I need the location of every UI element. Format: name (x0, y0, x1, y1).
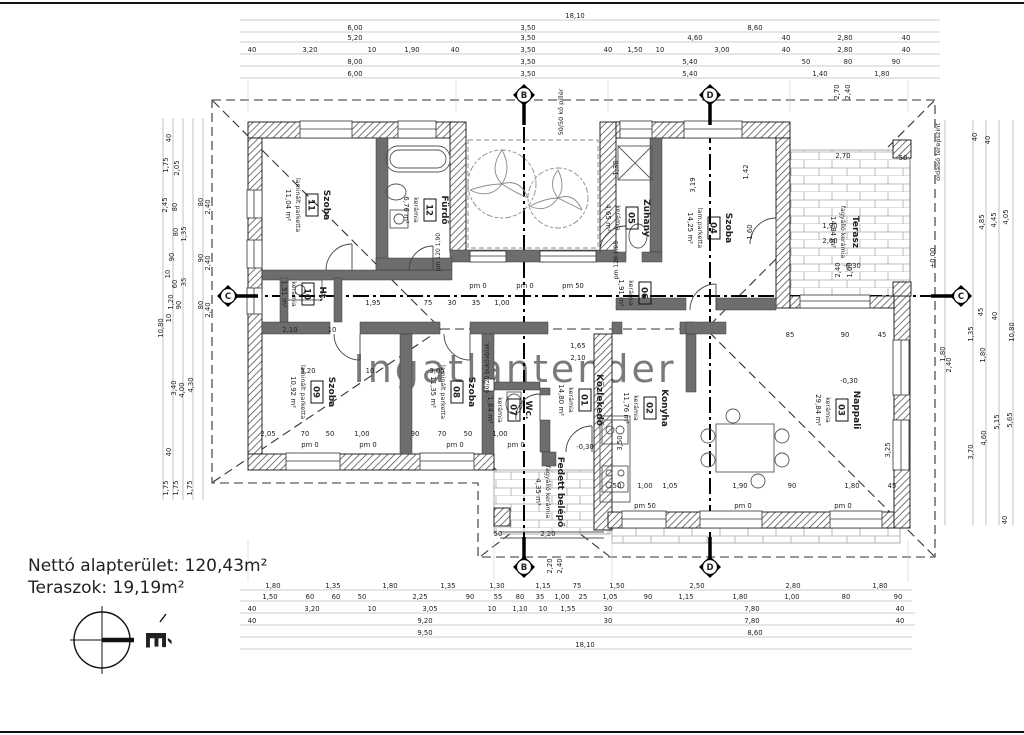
dim-label: 3,40 (170, 380, 178, 395)
window (398, 121, 436, 138)
dim-label: 18,10 (565, 12, 584, 20)
dim-label: 2,25 (412, 593, 427, 601)
dim-label: 90 (841, 331, 850, 339)
dim-label: 1,75 (172, 480, 180, 495)
dim-label: 40 (782, 46, 791, 54)
floorplan-drawing: Ingatlantender (0, 0, 1024, 735)
dim-label: 40 (782, 34, 791, 42)
dim-label: 40 (902, 46, 911, 54)
dim-label: 2,40 (204, 199, 212, 214)
dim-label: 75 (573, 582, 582, 590)
annotation: pm 0 (834, 502, 851, 510)
annotation: pm 50 (634, 502, 656, 510)
dim-label: 5,40 (682, 70, 697, 78)
room-material: laminált parketta (294, 178, 302, 232)
dim-label: 2,05 (260, 430, 275, 438)
dim-label: 1,00 (494, 299, 509, 307)
annotation: pm 0 (301, 441, 318, 449)
dim-label: 25 (579, 593, 588, 601)
room-material: kerámia (290, 281, 298, 307)
dim-label: 4,45 (990, 212, 998, 227)
window (286, 453, 340, 470)
room-area: 14,25 m² (686, 212, 694, 244)
dim-label: 1,00 (637, 482, 652, 490)
room-area: 4,65 m² (604, 204, 612, 232)
dim-label: 5,65 (1006, 412, 1014, 427)
dim-label: 1,75 (162, 480, 170, 495)
window (893, 420, 909, 470)
terrace-door (800, 295, 870, 308)
window (247, 240, 262, 268)
dim-label: 1,80 (979, 347, 987, 362)
room-material: laminált parketta (299, 365, 307, 419)
dim-label: 2,20 (540, 530, 555, 538)
annotation: pm 0 (446, 441, 463, 449)
dim-label: 10 (165, 314, 173, 323)
porch-door (470, 251, 506, 262)
dim-label: 80 (516, 593, 525, 601)
dim-label: 10 (539, 605, 548, 613)
dim-label: 2,40 (945, 357, 953, 372)
dim-label: 50 (899, 154, 908, 162)
annotation: 50/50 kő pillér (556, 88, 565, 135)
dim-label: 45 (878, 331, 887, 339)
room-material: kerámia (824, 397, 832, 423)
room-name: Szoba (466, 377, 476, 407)
dim-label: 3,70 (967, 444, 975, 459)
dim-label: 2,40 (834, 262, 842, 277)
dim-label: 90 (175, 301, 183, 310)
dim-label: 3,50 (520, 24, 535, 32)
room-area: 6,76 m² (402, 196, 410, 224)
annotation: oldalsó terepszint (934, 123, 942, 181)
dim-label: 10 (328, 326, 337, 334)
dim-label: 40 (1001, 516, 1009, 525)
room-name: Fürdő (439, 195, 449, 224)
annotation: pm 120 1,90 (435, 233, 442, 271)
dim-label: 40 (165, 448, 173, 457)
dim-label: 8,00 (347, 58, 362, 66)
room-material: kerámia (632, 395, 640, 421)
dim-label: 2,70 (833, 84, 841, 99)
dim-label: 3,50 (520, 34, 535, 42)
room-number: 02 (644, 402, 654, 414)
dim-label: 1,35 (325, 582, 340, 590)
dim-label: 1,05 (662, 482, 677, 490)
room-area: 4,35 m² (534, 478, 542, 506)
dim-label: 40 (165, 134, 173, 143)
dim-label: 30 (448, 299, 457, 307)
window (893, 340, 909, 395)
section-letter: C (958, 292, 964, 302)
dim-label: 80 (171, 203, 179, 212)
dim-label: 3,50 (520, 46, 535, 54)
dim-label: 1,30 (489, 582, 504, 590)
dim-label: 40 (248, 46, 257, 54)
dim-label: 10 (368, 46, 377, 54)
dim-label: 2,40 (204, 255, 212, 270)
dim-label: 5,20 (347, 34, 362, 42)
annotation: pm 0 (734, 502, 751, 510)
dim-label: 75 (424, 299, 433, 307)
dim-label: 35 (180, 278, 188, 287)
room-area: 10,92 m² (289, 376, 297, 408)
dim-label: 40 (991, 312, 999, 321)
annotation: pm 120 1,05 (613, 241, 620, 279)
annotation: -0,30 (843, 262, 861, 270)
room-number: 06 (639, 287, 649, 299)
window (420, 453, 474, 470)
dim-label: 85 (786, 331, 795, 339)
dim-label: 1,10 (512, 605, 527, 613)
room-name: Nappali (851, 391, 861, 430)
dim-label: 80 (844, 58, 853, 66)
window (622, 511, 666, 528)
dim-label: 50 (358, 593, 367, 601)
dim-label: 1,40 (812, 70, 827, 78)
dim-label: 1,50 (609, 582, 624, 590)
dim-label: 2,80 (837, 34, 852, 42)
dim-label: 8,60 (747, 629, 762, 637)
dim-label: 90 (411, 430, 420, 438)
dim-label: 70 (301, 430, 310, 438)
room-name: Közlekedő (594, 374, 604, 426)
section-letter: C (225, 292, 231, 302)
dim-label: 1,05 (602, 593, 617, 601)
dim-label: 5,40 (682, 58, 697, 66)
dim-label: 2,80 (837, 46, 852, 54)
annotation: pm 0 (507, 441, 524, 449)
dim-label: 4,00 (178, 382, 186, 397)
net-area-text: Nettó alapterület: 120,43m² (28, 556, 267, 576)
dim-label: 60 (332, 593, 341, 601)
dim-label: 90 (168, 253, 176, 262)
dim-label: 10,80 (1008, 322, 1016, 341)
dim-label: 3,05 (422, 605, 437, 613)
room-name: Konyha (659, 389, 669, 427)
porch-window (540, 251, 596, 262)
dim-label: 1,00 (554, 593, 569, 601)
dim-label: 40 (248, 605, 257, 613)
dim-label: 1,35 (440, 582, 455, 590)
dim-label: 35 (472, 299, 481, 307)
window (300, 121, 352, 138)
window (684, 121, 742, 138)
dim-label: 40 (984, 136, 992, 145)
room-number: 07 (508, 404, 518, 416)
room-name: Szoba (326, 377, 336, 407)
dim-label: 30 (604, 617, 613, 625)
dim-label: 1,75 (162, 157, 170, 172)
dim-label: 1,90 (404, 46, 419, 54)
section-letter: B (521, 91, 527, 101)
dim-label: 1,75 (186, 480, 194, 495)
dim-label: 1,90 (732, 482, 747, 490)
dim-label: 1,15 (678, 593, 693, 601)
dim-label: 90 (788, 482, 797, 490)
room-name: Szoba (321, 190, 331, 220)
annotation: -0,30 (840, 377, 858, 385)
covered-entry-floor (494, 470, 610, 534)
dim-label: 10 (656, 46, 665, 54)
dim-label: 2,50 (689, 582, 704, 590)
dim-label: 50 (326, 430, 335, 438)
dim-label: 2,70 (835, 152, 850, 160)
dim-label: 1,80 (265, 582, 280, 590)
dim-label: 1,55 (560, 605, 575, 613)
dim-label: 1,80 (872, 582, 887, 590)
dim-label: 1,80 (874, 70, 889, 78)
room-number: 12 (424, 204, 434, 216)
dim-label: 3,19 (689, 177, 697, 192)
rear-step (612, 528, 900, 543)
dim-label: 1,15 (535, 582, 550, 590)
annotation: pm 50 (562, 282, 584, 290)
window (700, 511, 762, 528)
room-material: kerámia (412, 197, 420, 223)
dim-label: 1,00 (492, 430, 507, 438)
dim-label: 60 (171, 280, 179, 289)
room-area: 11,35 m² (429, 376, 437, 408)
dim-label: 90 (644, 593, 653, 601)
dim-label: 90 (892, 58, 901, 66)
room-number: 04 (708, 222, 718, 234)
dim-label: 70 (438, 430, 447, 438)
room-area: 14,84 m² (829, 216, 837, 248)
dim-label: 3,20 (302, 46, 317, 54)
room-number: 11 (306, 199, 316, 211)
section-letter: D (706, 91, 713, 101)
dim-label: 40 (902, 34, 911, 42)
dim-label: 10 (164, 270, 172, 279)
room-number: 09 (311, 386, 321, 398)
annotation: pm 0 (469, 282, 486, 290)
dim-label: 1,30 (612, 160, 620, 175)
dim-label: 4,30 (187, 377, 195, 392)
room-name: Szoba (723, 213, 733, 243)
room-material: kerámia (614, 205, 622, 231)
dim-label: 4,85 (978, 214, 986, 229)
dim-label: 40 (248, 617, 257, 625)
room-number: 08 (451, 386, 461, 398)
dim-label: 40 (896, 617, 905, 625)
dim-label: 3,25 (884, 442, 892, 457)
dim-label: 8,60 (747, 24, 762, 32)
annotation: ±0,00 (929, 248, 937, 269)
dim-label: 2,20 (546, 558, 554, 573)
dim-label: 80 (842, 593, 851, 601)
dim-label: 18,10 (575, 641, 594, 649)
dim-label: 1,35 (967, 326, 975, 341)
dim-label: 40 (604, 46, 613, 54)
dim-label: 80 (172, 228, 180, 237)
dim-label: 10 (488, 605, 497, 613)
dim-label: 2,05 (173, 160, 181, 175)
dim-label: 3,50 (520, 58, 535, 66)
dim-label: 1,00 (354, 430, 369, 438)
annotation: 60/20 bukóablak (484, 342, 491, 393)
annotation: -0,30 (576, 443, 594, 451)
room-name: Fedett belépő (555, 457, 566, 528)
room-name: Zuhany (641, 199, 651, 237)
dim-label: 1,00 (784, 593, 799, 601)
window (620, 121, 652, 138)
dim-label: 90 (894, 593, 903, 601)
dim-label: 1,50 (627, 46, 642, 54)
dim-label: 60 (306, 593, 315, 601)
dim-label: 2,10 (570, 354, 585, 362)
dim-label: 1,95 (365, 299, 380, 307)
dim-label: 90 (466, 593, 475, 601)
dim-label: 7,80 (744, 617, 759, 625)
room-number: 05 (626, 212, 636, 224)
room-material: kerámia (567, 387, 575, 413)
dim-label: 40 (451, 46, 460, 54)
dim-label: 1,80 (382, 582, 397, 590)
dim-label: 2,10 (282, 326, 297, 334)
dim-label: 40 (896, 605, 905, 613)
dim-label: 45 (888, 482, 897, 490)
dim-label: 1,35 (180, 226, 188, 241)
dim-label: 4,05 (1002, 209, 1010, 224)
dim-label: 50 (494, 530, 503, 538)
dim-label: 1,50 (262, 593, 277, 601)
window (247, 190, 262, 218)
room-material: fagyálló kerámia (839, 206, 847, 259)
room-area: 1,91 m² (617, 279, 625, 307)
dim-label: 10 (368, 605, 377, 613)
dim-label: 1,20 (167, 294, 175, 309)
room-number: 03 (836, 404, 846, 416)
floorplan-page: Ingatlantender (0, 0, 1024, 735)
room-area: 14,80 m² (557, 384, 565, 416)
dim-label: 5,15 (993, 414, 1001, 429)
dim-label: 55 (494, 593, 503, 601)
dim-label: 2,45 (161, 197, 169, 212)
dim-label: 7,80 (744, 605, 759, 613)
dim-label: 6,00 (347, 24, 362, 32)
dim-label: 9,20 (417, 617, 432, 625)
room-number: 01 (579, 394, 589, 406)
dim-label: 50 (802, 58, 811, 66)
dim-label: 3,00 (714, 46, 729, 54)
section-letter: B (521, 563, 527, 573)
room-area: 1,51 m² (280, 280, 288, 308)
room-area: 1,64 m² (486, 396, 494, 424)
dim-label: 4,60 (687, 34, 702, 42)
room-number: 10 (302, 288, 312, 300)
room-name: Terasz (850, 216, 860, 248)
room-area: 11,76 m² (622, 392, 630, 424)
room-area: 29,84 m² (814, 394, 822, 426)
room-name: Wc. (523, 401, 533, 420)
dim-label: 1,60 (746, 224, 754, 239)
dim-label: 3,50 (616, 435, 624, 450)
north-label: É (139, 630, 173, 649)
dim-label: 1,42 (742, 164, 750, 179)
window (247, 288, 262, 314)
annotation: pm 0 (516, 282, 533, 290)
dim-label: 50 (613, 482, 622, 490)
window (830, 511, 882, 528)
dim-label: 9,50 (417, 629, 432, 637)
dim-label: 10,80 (157, 318, 165, 337)
dim-label: 6,00 (347, 70, 362, 78)
room-material: laminált parketta (439, 365, 447, 419)
annotation: pm 0 (359, 441, 376, 449)
section-letter: D (706, 563, 713, 573)
dim-label: 35 (536, 593, 545, 601)
room-material: kerámia (496, 397, 504, 423)
room-material: fagyálló kerámia (544, 466, 552, 519)
dim-label: 50 (464, 430, 473, 438)
terrace-area-text: Teraszok: 19,19m² (27, 578, 185, 598)
dim-label: 3,50 (520, 70, 535, 78)
dim-label: 40 (971, 133, 979, 142)
room-material: lam.parketta (696, 208, 703, 248)
dim-label: 2,40 (556, 558, 564, 573)
dim-label: 30 (604, 605, 613, 613)
dim-label: 3,20 (304, 605, 319, 613)
dim-label: 2,40 (844, 84, 852, 99)
room-material: kerámia (627, 280, 635, 306)
dim-label: 2,40 (204, 302, 212, 317)
dim-label: 2,80 (785, 582, 800, 590)
room-area: 11,04 m² (284, 189, 292, 221)
dim-label: 10 (366, 367, 375, 375)
room-name: Ht. (317, 286, 327, 301)
dim-label: 1,65 (570, 342, 585, 350)
dim-label: 1,80 (844, 482, 859, 490)
dim-label: 1,80 (732, 593, 747, 601)
dim-label: 4,60 (980, 430, 988, 445)
dim-label: 45 (977, 308, 985, 317)
